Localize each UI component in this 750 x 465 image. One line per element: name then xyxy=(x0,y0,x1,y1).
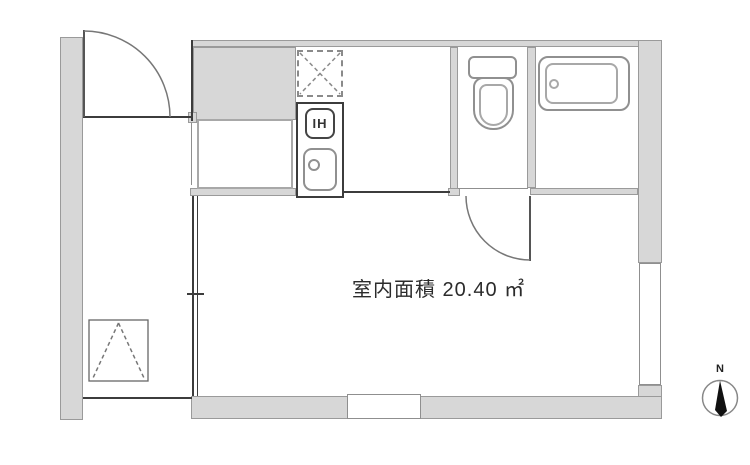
washing-machine-pan xyxy=(297,50,343,97)
kitchen-sink xyxy=(303,148,337,191)
compass-north-label: N xyxy=(712,363,728,375)
toilet-bowl-inner xyxy=(479,84,508,126)
entrance-door-leaf xyxy=(83,30,85,117)
floor-plan: IH 室内面積 20.40 ㎡ N xyxy=(0,0,750,465)
kitchen-block-edge-line xyxy=(191,40,193,121)
wall-bottom xyxy=(191,396,662,419)
ih-stove-label: IH xyxy=(307,110,333,137)
sliding-window-tick xyxy=(187,293,204,295)
kitchen-main-divider-line xyxy=(344,191,450,193)
toilet-door-leaf xyxy=(529,196,531,261)
wall-left xyxy=(60,37,83,420)
bathtub-drain-icon xyxy=(549,79,559,89)
room-area-label: 室内面積 20.40 ㎡ xyxy=(352,273,525,302)
north-arrow-icon xyxy=(715,381,727,418)
sink-drain-icon xyxy=(308,159,320,171)
toilet-threshold-line xyxy=(458,188,528,189)
sliding-window-line-inner xyxy=(197,196,198,396)
escape-hatch-icon xyxy=(89,320,148,381)
wall-right-upper xyxy=(638,40,662,263)
window-east xyxy=(639,263,661,385)
toilet-tank xyxy=(468,56,517,79)
kitchen-south-wall xyxy=(190,188,296,196)
balcony-bottom-line xyxy=(83,397,192,399)
toilet-door-arc xyxy=(466,196,530,260)
storage-rect xyxy=(197,119,293,189)
kitchen-west-window-line-a xyxy=(191,123,192,185)
ih-stove: IH xyxy=(305,108,335,139)
entrance-wall-line xyxy=(83,116,192,118)
window-south xyxy=(347,394,421,419)
sliding-window-line-outer xyxy=(192,196,194,396)
toilet-west-wall xyxy=(450,47,458,196)
kitchen-block xyxy=(193,47,296,120)
toilet-east-wall xyxy=(527,47,536,188)
compass xyxy=(703,381,738,418)
entrance-door-arc xyxy=(84,31,170,117)
wall-top xyxy=(192,40,662,47)
bath-south-wall xyxy=(530,188,638,195)
